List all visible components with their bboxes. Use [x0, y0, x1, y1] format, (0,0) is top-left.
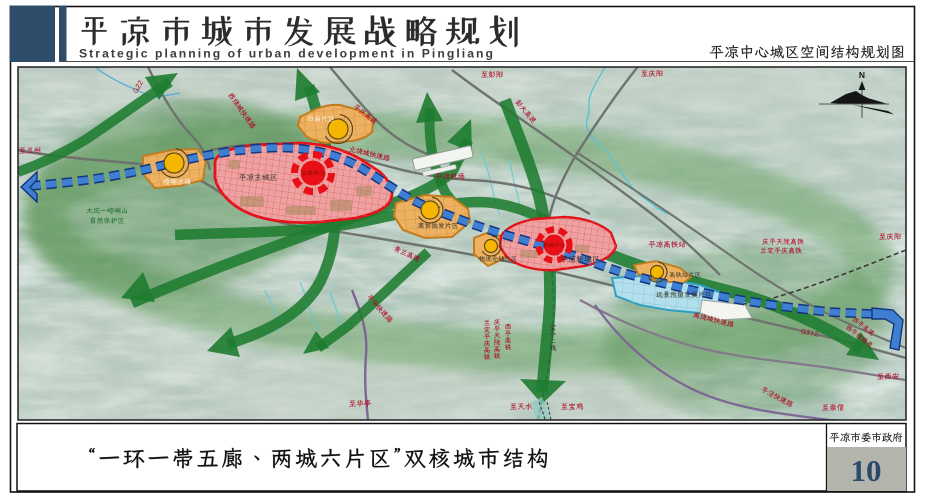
svg-text:Strategic planning of urban de: Strategic planning of urban development …: [79, 47, 495, 61]
svg-text:10: 10: [851, 453, 882, 488]
svg-text:N: N: [859, 70, 865, 80]
